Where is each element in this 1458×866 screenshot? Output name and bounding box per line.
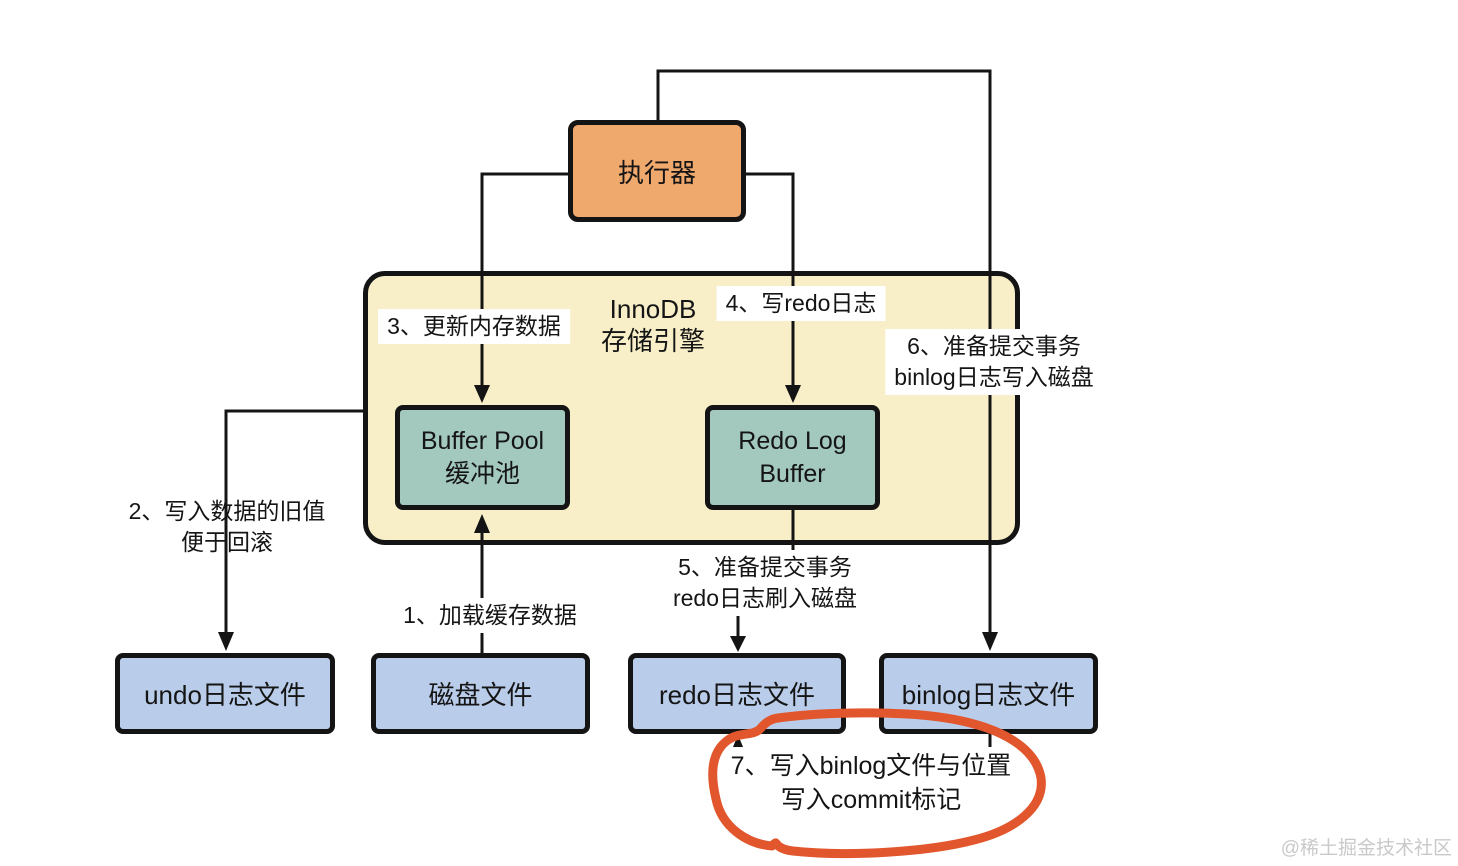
disk-file-label: 磁盘文件 bbox=[428, 675, 532, 712]
binlog-log-file-label: binlog日志文件 bbox=[902, 675, 1075, 712]
innodb-engine-title-line2: 存储引擎 bbox=[601, 325, 705, 357]
redo-log-buffer-label-2: Buffer bbox=[759, 458, 825, 491]
innodb-engine-title: InnoDB 存储引擎 bbox=[601, 293, 705, 357]
redo-log-buffer-label-1: Redo Log bbox=[738, 425, 846, 458]
step1-label: 1、加载缓存数据 bbox=[394, 598, 586, 633]
step2-label: 2、写入数据的旧值 便于回滚 bbox=[129, 496, 326, 558]
diagram-canvas: 执行器 Buffer Pool 缓冲池 Redo Log Buffer undo… bbox=[0, 0, 1458, 866]
step2-text-line1: 2、写入数据的旧值 bbox=[129, 496, 326, 527]
step4-text: 4、写redo日志 bbox=[726, 288, 877, 319]
undo-log-file-label: undo日志文件 bbox=[144, 675, 306, 712]
buffer-pool-node: Buffer Pool 缓冲池 bbox=[395, 405, 570, 510]
step7-label: 7、写入binlog文件与位置 写入commit标记 bbox=[722, 747, 1021, 819]
step5-label: 5、准备提交事务 redo日志刷入磁盘 bbox=[664, 550, 866, 616]
step7-text-line1: 7、写入binlog文件与位置 bbox=[731, 749, 1012, 783]
undo-log-file-node: undo日志文件 bbox=[115, 653, 335, 734]
watermark: @稀土掘金技术社区 bbox=[1281, 833, 1452, 860]
step2-text-line2: 便于回滚 bbox=[129, 527, 326, 558]
binlog-log-file-node: binlog日志文件 bbox=[879, 653, 1098, 734]
innodb-engine-title-line1: InnoDB bbox=[601, 293, 705, 325]
step6-text-line2: binlog日志写入磁盘 bbox=[894, 362, 1093, 393]
arrowhead-into-redo-file bbox=[730, 636, 746, 652]
step4-label: 4、写redo日志 bbox=[717, 286, 886, 321]
disk-file-node: 磁盘文件 bbox=[371, 653, 590, 734]
step6-label: 6、准备提交事务 binlog日志写入磁盘 bbox=[885, 329, 1102, 395]
arrowhead-into-undo-file bbox=[218, 632, 234, 651]
step6-text-line1: 6、准备提交事务 bbox=[894, 331, 1093, 362]
redo-log-buffer-node: Redo Log Buffer bbox=[705, 405, 880, 510]
redo-log-file-node: redo日志文件 bbox=[628, 653, 846, 734]
redo-log-file-label: redo日志文件 bbox=[659, 675, 815, 712]
step7-text-line2: 写入commit标记 bbox=[731, 783, 1012, 817]
arrowhead-into-binlog-file bbox=[982, 632, 998, 651]
executor-node: 执行器 bbox=[568, 120, 746, 222]
buffer-pool-label-cn: 缓冲池 bbox=[445, 458, 520, 491]
step1-text: 1、加载缓存数据 bbox=[403, 600, 577, 631]
executor-label: 执行器 bbox=[618, 153, 696, 190]
step5-text-line1: 5、准备提交事务 bbox=[673, 552, 857, 583]
step5-text-line2: redo日志刷入磁盘 bbox=[673, 583, 857, 614]
step3-label: 3、更新内存数据 bbox=[378, 309, 570, 344]
buffer-pool-label-en: Buffer Pool bbox=[421, 425, 544, 458]
step3-text: 3、更新内存数据 bbox=[387, 311, 561, 342]
